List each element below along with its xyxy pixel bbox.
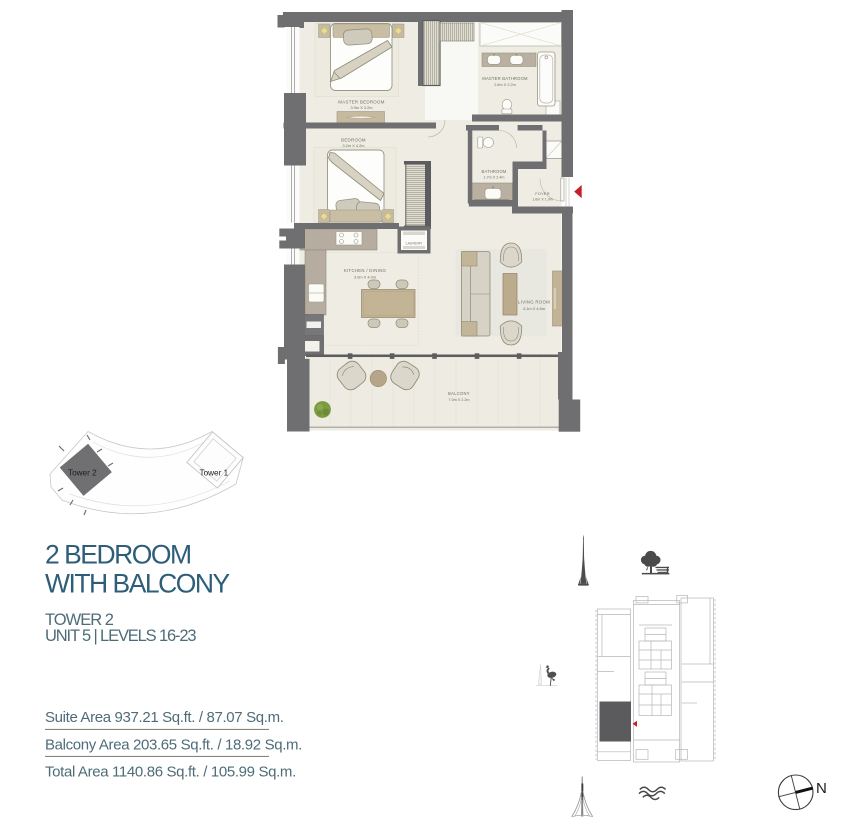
svg-text:7.0m X 2.2m: 7.0m X 2.2m <box>449 398 470 402</box>
svg-text:Tower 1: Tower 1 <box>200 469 229 478</box>
svg-text:1.7m X 2.4m: 1.7m X 2.4m <box>484 176 505 180</box>
svg-text:BALCONY: BALCONY <box>448 391 470 396</box>
svg-text:WITH BALCONY: WITH BALCONY <box>45 569 231 599</box>
svg-text:2 BEDROOM: 2 BEDROOM <box>45 540 191 570</box>
svg-text:BATHROOM: BATHROOM <box>482 169 507 174</box>
svg-text:3.2m X 4.2m: 3.2m X 4.2m <box>342 143 364 148</box>
svg-text:N: N <box>816 780 827 797</box>
svg-text:Tower 2: Tower 2 <box>68 469 97 478</box>
svg-text:KITCHEN / DINING: KITCHEN / DINING <box>344 268 387 273</box>
svg-text:LAUNDRY: LAUNDRY <box>406 242 423 246</box>
svg-text:MASTER BATHROOM: MASTER BATHROOM <box>482 76 528 81</box>
svg-text:FOYER: FOYER <box>535 191 549 196</box>
svg-text:1.6m X 1.9m: 1.6m X 1.9m <box>532 198 552 202</box>
svg-text:Total Area 1140.86 Sq.ft. / 10: Total Area 1140.86 Sq.ft. / 105.99 Sq.m. <box>45 764 296 781</box>
svg-text:Balcony Area 203.65 Sq.ft. / 1: Balcony Area 203.65 Sq.ft. / 18.92 Sq.m. <box>45 737 302 754</box>
svg-text:Suite Area 937.21 Sq.ft. / 87.: Suite Area 937.21 Sq.ft. / 87.07 Sq.m. <box>45 709 284 726</box>
svg-text:BEDROOM: BEDROOM <box>341 138 366 143</box>
svg-text:LIVING ROOM: LIVING ROOM <box>518 300 550 305</box>
svg-text:4.1m X 4.6m: 4.1m X 4.6m <box>523 306 545 311</box>
svg-text:MASTER BEDROOM: MASTER BEDROOM <box>338 99 384 104</box>
svg-text:UNIT 5 | LEVELS 16-23: UNIT 5 | LEVELS 16-23 <box>45 627 196 645</box>
svg-text:2.6m X 2.2m: 2.6m X 2.2m <box>494 83 516 87</box>
svg-text:3.9m X 3.2m: 3.9m X 3.2m <box>350 105 372 110</box>
svg-text:3.0m X 4.0m: 3.0m X 4.0m <box>354 275 376 280</box>
